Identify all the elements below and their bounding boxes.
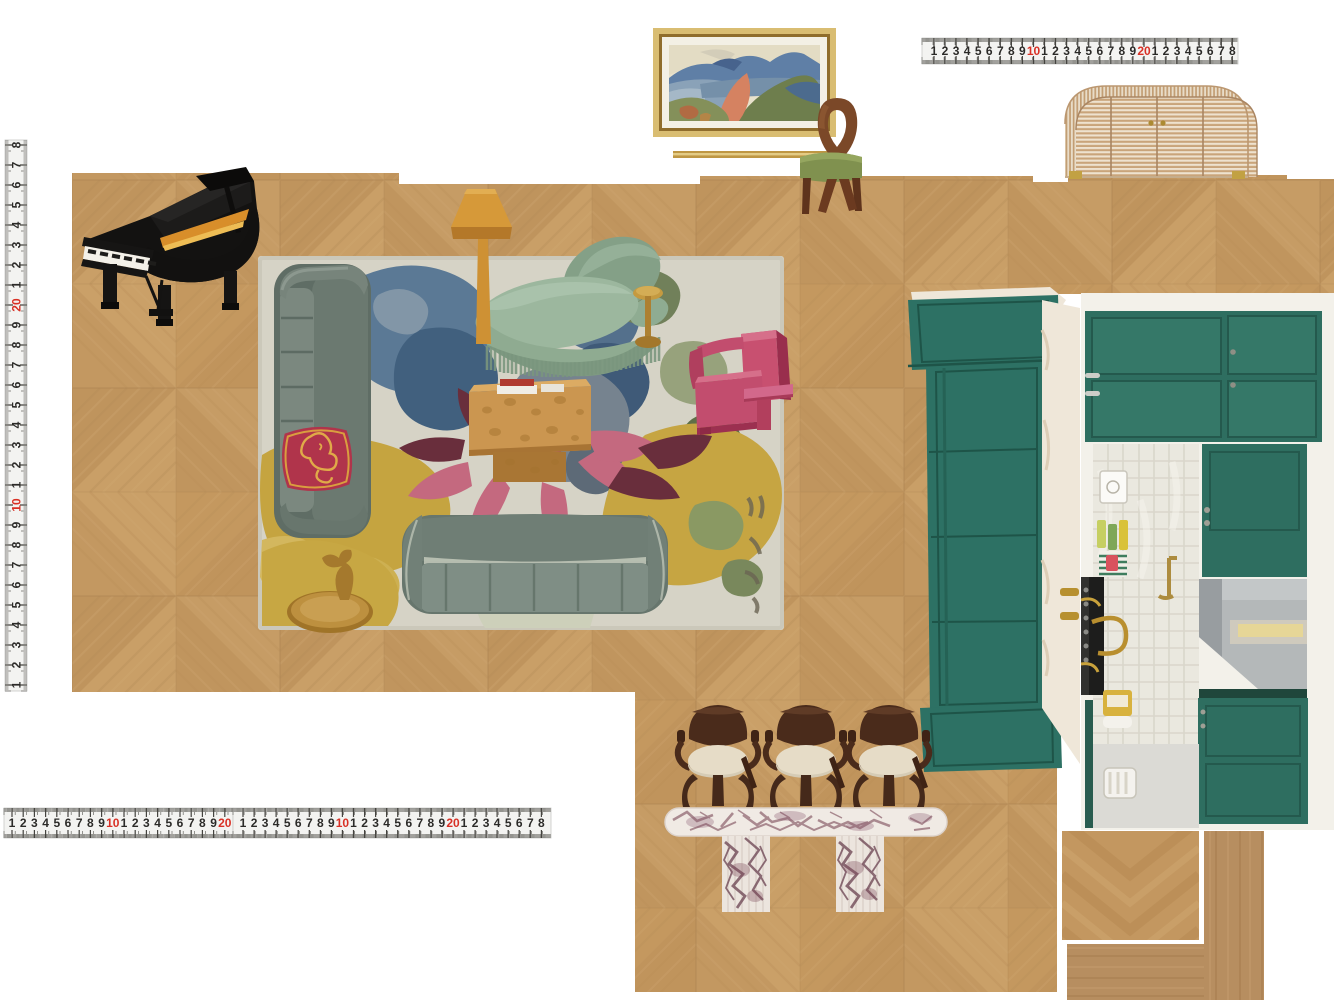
svg-text:5: 5: [165, 816, 172, 830]
svg-text:5: 5: [1196, 44, 1203, 58]
svg-text:6: 6: [1096, 44, 1103, 58]
svg-text:1: 1: [240, 816, 247, 830]
svg-text:4: 4: [9, 621, 23, 628]
svg-text:2: 2: [9, 461, 23, 468]
svg-text:8: 8: [87, 816, 94, 830]
svg-text:5: 5: [53, 816, 60, 830]
svg-text:5: 5: [9, 201, 23, 208]
svg-text:9: 9: [1019, 44, 1026, 58]
svg-text:2: 2: [361, 816, 368, 830]
svg-text:8: 8: [1118, 44, 1125, 58]
svg-text:20: 20: [9, 298, 23, 312]
svg-text:1: 1: [350, 816, 357, 830]
svg-text:1: 1: [1041, 44, 1048, 58]
svg-text:6: 6: [177, 816, 184, 830]
svg-text:3: 3: [31, 816, 38, 830]
svg-text:8: 8: [1008, 44, 1015, 58]
svg-text:7: 7: [1107, 44, 1114, 58]
svg-text:3: 3: [9, 441, 23, 448]
svg-text:4: 4: [964, 44, 971, 58]
svg-text:20: 20: [218, 816, 232, 830]
svg-text:6: 6: [9, 381, 23, 388]
svg-text:3: 3: [9, 641, 23, 648]
svg-text:7: 7: [1218, 44, 1225, 58]
svg-text:6: 6: [986, 44, 993, 58]
svg-text:2: 2: [1163, 44, 1170, 58]
svg-text:5: 5: [975, 44, 982, 58]
svg-text:7: 7: [9, 161, 23, 168]
svg-text:8: 8: [538, 816, 545, 830]
svg-text:7: 7: [306, 816, 313, 830]
svg-text:7: 7: [416, 816, 423, 830]
svg-text:8: 8: [9, 141, 23, 148]
svg-text:5: 5: [284, 816, 291, 830]
svg-text:8: 8: [9, 541, 23, 548]
svg-text:1: 1: [931, 44, 938, 58]
svg-text:5: 5: [1085, 44, 1092, 58]
svg-text:8: 8: [9, 341, 23, 348]
svg-text:9: 9: [439, 816, 446, 830]
svg-text:5: 5: [9, 601, 23, 608]
svg-text:4: 4: [9, 421, 23, 428]
svg-text:3: 3: [262, 816, 269, 830]
svg-text:9: 9: [9, 521, 23, 528]
svg-text:2: 2: [132, 816, 139, 830]
svg-text:4: 4: [494, 816, 501, 830]
svg-text:1: 1: [9, 481, 23, 488]
svg-text:9: 9: [210, 816, 217, 830]
svg-text:4: 4: [1074, 44, 1081, 58]
svg-text:10: 10: [336, 816, 350, 830]
svg-text:5: 5: [9, 401, 23, 408]
svg-text:5: 5: [505, 816, 512, 830]
svg-text:3: 3: [953, 44, 960, 58]
svg-text:3: 3: [483, 816, 490, 830]
svg-text:2: 2: [9, 261, 23, 268]
svg-text:8: 8: [428, 816, 435, 830]
svg-text:2: 2: [251, 816, 258, 830]
svg-text:9: 9: [328, 816, 335, 830]
svg-text:7: 7: [997, 44, 1004, 58]
svg-text:1: 1: [121, 816, 128, 830]
svg-text:10: 10: [1027, 44, 1041, 58]
svg-text:4: 4: [42, 816, 49, 830]
svg-text:20: 20: [1137, 44, 1151, 58]
svg-text:1: 1: [461, 816, 468, 830]
svg-text:6: 6: [1207, 44, 1214, 58]
svg-text:1: 1: [9, 681, 23, 688]
svg-text:6: 6: [516, 816, 523, 830]
svg-text:6: 6: [295, 816, 302, 830]
svg-text:5: 5: [394, 816, 401, 830]
svg-text:6: 6: [9, 581, 23, 588]
svg-text:4: 4: [1185, 44, 1192, 58]
svg-text:6: 6: [9, 181, 23, 188]
svg-text:2: 2: [9, 661, 23, 668]
svg-text:7: 7: [527, 816, 534, 830]
svg-text:7: 7: [188, 816, 195, 830]
svg-text:6: 6: [405, 816, 412, 830]
svg-text:4: 4: [273, 816, 280, 830]
svg-text:10: 10: [9, 498, 23, 512]
svg-text:8: 8: [1229, 44, 1236, 58]
svg-text:2: 2: [20, 816, 27, 830]
svg-text:8: 8: [317, 816, 324, 830]
svg-text:9: 9: [9, 321, 23, 328]
svg-text:4: 4: [9, 221, 23, 228]
svg-text:2: 2: [942, 44, 949, 58]
svg-text:2: 2: [472, 816, 479, 830]
svg-text:6: 6: [65, 816, 72, 830]
svg-text:20: 20: [446, 816, 460, 830]
svg-text:3: 3: [143, 816, 150, 830]
svg-text:4: 4: [154, 816, 161, 830]
svg-text:7: 7: [9, 361, 23, 368]
svg-text:9: 9: [98, 816, 105, 830]
svg-text:1: 1: [1152, 44, 1159, 58]
svg-text:8: 8: [199, 816, 206, 830]
svg-text:7: 7: [76, 816, 83, 830]
svg-text:1: 1: [9, 816, 16, 830]
svg-text:3: 3: [1174, 44, 1181, 58]
svg-text:4: 4: [383, 816, 390, 830]
svg-text:7: 7: [9, 561, 23, 568]
svg-text:10: 10: [106, 816, 120, 830]
svg-text:3: 3: [9, 241, 23, 248]
svg-text:2: 2: [1052, 44, 1059, 58]
svg-text:9: 9: [1130, 44, 1137, 58]
svg-text:3: 3: [1063, 44, 1070, 58]
svg-text:1: 1: [9, 281, 23, 288]
svg-text:3: 3: [372, 816, 379, 830]
